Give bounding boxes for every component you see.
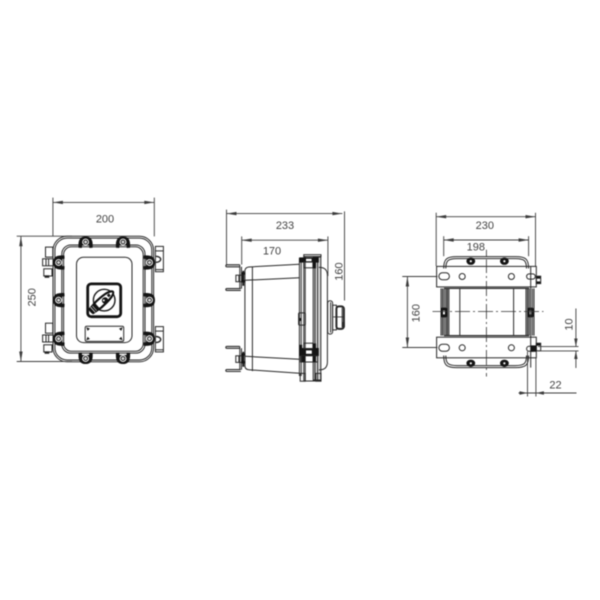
- svg-text:233: 233: [276, 220, 294, 232]
- svg-text:22: 22: [549, 380, 561, 392]
- svg-text:250: 250: [26, 288, 38, 306]
- svg-text:160: 160: [410, 304, 422, 322]
- svg-text:160: 160: [334, 262, 346, 280]
- svg-text:200: 200: [96, 213, 114, 225]
- svg-text:170: 170: [263, 246, 281, 258]
- svg-text:230: 230: [476, 220, 494, 232]
- svg-text:10: 10: [563, 318, 575, 330]
- svg-text:198: 198: [467, 242, 485, 254]
